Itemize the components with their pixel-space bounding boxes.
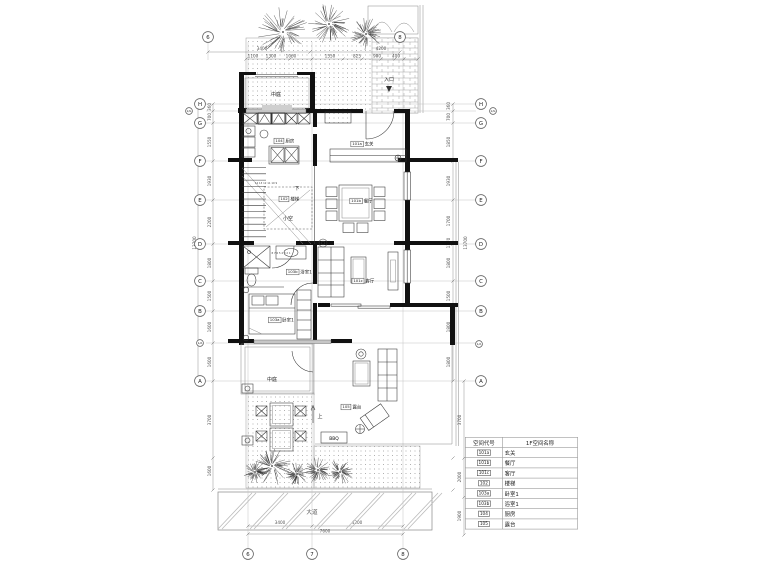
legend-code: 103b (477, 501, 491, 507)
dimension-text: 2000 (457, 471, 462, 482)
grid-bubble-label: F (479, 159, 482, 165)
dimension-text: 3700 (457, 414, 462, 425)
dimension-text: 1800 (207, 257, 212, 268)
grid-bubble-label: E (479, 198, 483, 204)
room-name: 客厅 (366, 278, 375, 284)
dimension-text: 3400 (257, 46, 268, 51)
grid-bubble-label: E (198, 198, 202, 204)
grid-bubble-label: C (479, 279, 483, 285)
room-label-bath: 103b浴室1 (286, 269, 312, 275)
room-label-terrace: 105露台 (341, 404, 362, 410)
dimension-text: 900 (373, 54, 381, 59)
grid-bubble-label: G (198, 121, 202, 127)
legend-name: 厨房 (503, 509, 578, 519)
dimension-text: 700 (446, 113, 451, 121)
grid-bubble-label: 1/G (187, 109, 192, 113)
grid-bubble-label: H (479, 102, 483, 108)
grid-bubble-label: 1/G (491, 109, 496, 113)
legend-row: 103b浴室1 (465, 499, 577, 509)
room-name: 玄关 (365, 141, 374, 147)
entrance-label: 入口 (384, 77, 394, 83)
grid-bubble-label: B (479, 309, 483, 315)
dimension-text: 1930 (446, 175, 451, 186)
room-name: 餐厅 (364, 198, 373, 204)
dimension-text: 1850 (446, 136, 451, 147)
legend-code: 102 (478, 480, 490, 486)
legend-header-name: 1F空间名称 (503, 437, 578, 447)
legend-name: 客厅 (503, 468, 578, 478)
legend-code: 101a (477, 450, 491, 456)
legend-name: 玄关 (503, 448, 578, 458)
floor-plan-page: 3400420011001300106015508259004003607001… (0, 0, 760, 570)
courtyard-top-label: 中庭 (271, 91, 281, 98)
room-code: 101b (350, 198, 363, 204)
legend-body: 101a玄关101b餐厅101c客厅102楼梯103a卧室1103b浴室1104… (465, 448, 577, 530)
grid-bubble-label: 8 (398, 35, 402, 41)
stair-numbers-lower: 8 7 6 5 4 3 2 1 (272, 251, 291, 255)
room-label-living: 101c客厅 (352, 278, 375, 284)
legend-row: 101c客厅 (465, 468, 577, 478)
legend-row: 105露台 (465, 519, 577, 529)
stair-up-label: 上 (317, 413, 322, 420)
room-code: 103b (286, 269, 299, 275)
dimension-text: 360 (446, 102, 451, 110)
dimension-text: 1800 (446, 356, 451, 367)
dimension-text: 1600 (207, 465, 212, 476)
dimension-text: 1500 (207, 290, 212, 301)
grid-bubble-label: D (198, 242, 202, 248)
dimension-text: 13700 (463, 236, 468, 250)
dimension-text: 2200 (207, 216, 212, 227)
room-code: 104 (274, 138, 285, 144)
room-name: 厨房 (285, 138, 294, 144)
legend-code: 103a (477, 490, 491, 496)
dimension-text: 1500 (446, 290, 451, 301)
legend-row: 101a玄关 (465, 448, 577, 458)
grid-bubble-label: C (198, 279, 202, 285)
grid-bubble-label: H (198, 102, 202, 108)
room-label-kitchen: 104厨房 (274, 138, 295, 144)
grid-bubble-label: 6 (206, 35, 210, 41)
dimension-text: 360 (207, 103, 212, 111)
room-code: 103a (268, 317, 281, 323)
room-code: 101a (351, 141, 364, 147)
dimension-text: 1900 (457, 510, 462, 521)
legend-code: 101c (477, 470, 491, 476)
dimension-text: 1600 (207, 356, 212, 367)
legend-name: 露台 (503, 519, 578, 529)
legend-row: 103a卧室1 (465, 488, 577, 498)
legend-row: 104厨房 (465, 509, 577, 519)
room-name: 露台 (352, 404, 361, 410)
legend-row: 101b餐厅 (465, 458, 577, 468)
legend-name: 卧室1 (503, 488, 578, 498)
stair-numbers-upper: 14 13 12 11 10 9 (255, 181, 278, 185)
grid-bubble-label: D (479, 242, 483, 248)
grid-bubble-label: 1/A (477, 342, 482, 346)
legend-name: 楼梯 (503, 478, 578, 488)
dimension-text: 3400 (275, 520, 286, 525)
grid-bubble-label: B (198, 309, 202, 315)
dimension-text: 4200 (376, 46, 387, 51)
dimension-text: 1700 (446, 215, 451, 226)
room-label-dining: 101b餐厅 (350, 198, 373, 204)
road-label: 大道 (306, 508, 318, 516)
room-label-entry: 101a玄关 (351, 141, 374, 147)
legend-header-code: 空间代号 (465, 437, 502, 447)
dimension-text: 1600 (207, 321, 212, 332)
courtyard-bottom-label: 中庭 (267, 376, 277, 383)
legend-row: 102楼梯 (465, 478, 577, 488)
room-label-bedroom: 103a卧室1 (268, 317, 294, 323)
dimension-text: 1100 (248, 54, 259, 59)
dimension-text: 1300 (266, 54, 277, 59)
dimension-text: 700 (207, 113, 212, 121)
legend-name: 餐厅 (503, 458, 578, 468)
dimension-text: 825 (353, 54, 361, 59)
legend-code: 105 (478, 521, 490, 527)
grid-bubble-label: G (479, 121, 483, 127)
tree-icon (308, 4, 349, 42)
grid-bubble-label: A (479, 379, 483, 385)
dimension-text: 7600 (320, 529, 331, 534)
room-name: 楼梯 (290, 196, 299, 202)
stair-down-label: 下 (294, 186, 299, 192)
legend-name: 浴室1 (503, 499, 578, 509)
grid-bubble-label: 6 (246, 552, 250, 558)
void-label: 小空 (283, 215, 293, 222)
room-name: 卧室1 (282, 317, 294, 323)
room-label-stair: 102楼梯 (279, 196, 300, 202)
grid-bubble-label: 8 (401, 552, 405, 558)
legend-table: 空间代号 1F空间名称 101a玄关101b餐厅101c客厅102楼梯103a卧… (465, 437, 579, 529)
room-code: 105 (341, 404, 352, 410)
dimension-text: 1550 (207, 136, 212, 147)
grid-bubble-label: A (198, 379, 202, 385)
grid-bubble-label: F (198, 159, 201, 165)
bbq-label: BBQ (329, 436, 339, 442)
room-code: 101c (352, 278, 365, 284)
room-code: 102 (279, 196, 290, 202)
legend-code: 101b (477, 460, 491, 466)
floor-plan-canvas: 3400420011001300106015508259004003607001… (0, 0, 760, 570)
grid-bubble-label: 7 (310, 552, 313, 558)
dimension-text: 1550 (325, 54, 336, 59)
room-name: 浴室1 (300, 269, 312, 275)
site-layer (218, 5, 459, 530)
dimension-text: 3700 (207, 414, 212, 425)
legend-code: 104 (478, 511, 490, 517)
dimension-text: 1930 (207, 175, 212, 186)
grid-bubble-label: 1/A (198, 341, 203, 345)
dimension-text: 1800 (446, 257, 451, 268)
legend-header-row: 空间代号 1F空间名称 (465, 437, 577, 447)
